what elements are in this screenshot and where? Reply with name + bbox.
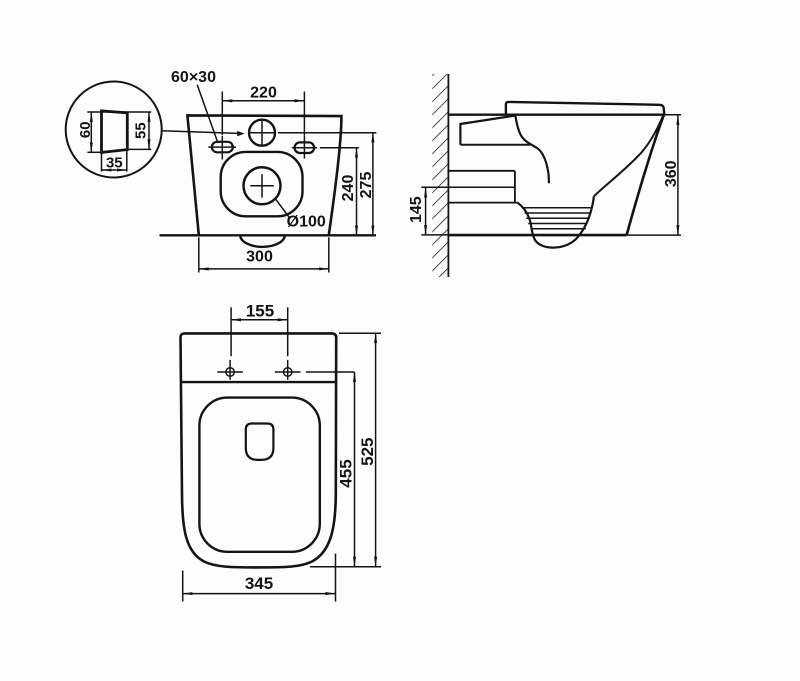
svg-text:145: 145 [408, 196, 425, 223]
svg-text:525: 525 [358, 438, 377, 466]
svg-text:55: 55 [133, 122, 150, 139]
svg-text:35: 35 [106, 155, 123, 172]
svg-text:300: 300 [246, 249, 273, 266]
svg-text:155: 155 [246, 302, 274, 321]
svg-text:240: 240 [340, 175, 357, 202]
svg-text:345: 345 [245, 574, 273, 593]
svg-text:455: 455 [337, 459, 356, 487]
svg-text:60×30: 60×30 [171, 69, 216, 86]
svg-text:275: 275 [358, 172, 375, 199]
svg-text:Ø100: Ø100 [287, 213, 326, 230]
svg-text:220: 220 [250, 84, 277, 101]
svg-text:60: 60 [77, 121, 94, 138]
svg-text:360: 360 [663, 160, 680, 187]
